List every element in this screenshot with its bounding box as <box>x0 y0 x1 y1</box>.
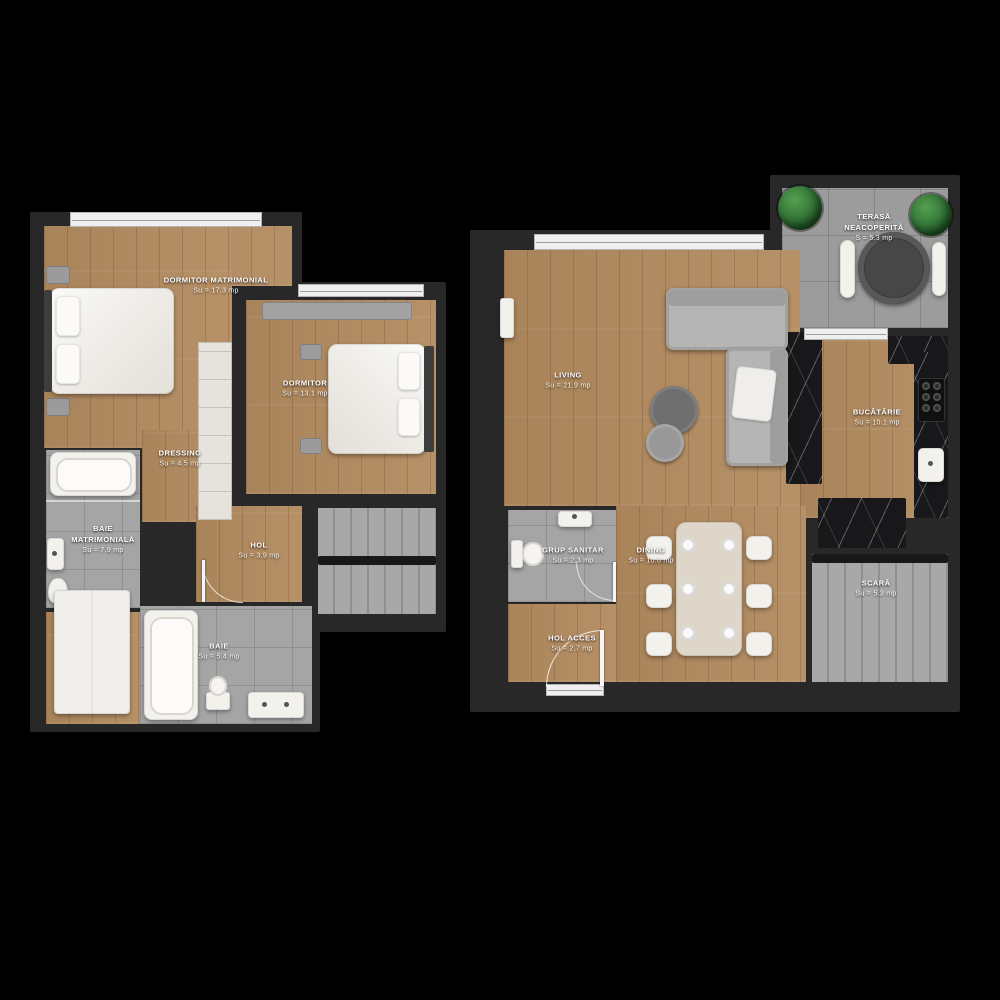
chair <box>746 632 772 656</box>
coffee-table <box>646 424 684 462</box>
faucet <box>572 514 577 519</box>
window <box>298 284 424 297</box>
window <box>534 234 764 250</box>
chair <box>746 536 772 560</box>
room-name: DORMITOR <box>283 378 327 387</box>
room-area: Su = 5.4 mp <box>189 652 249 662</box>
burner <box>933 393 941 401</box>
faucet <box>928 461 933 466</box>
faucet <box>52 551 57 556</box>
chair <box>646 584 672 608</box>
bathtub-inner <box>56 458 132 492</box>
room-name: SCARĂ <box>862 578 891 587</box>
room-area: S = 5.3 mp <box>835 234 913 244</box>
room-area: Su = 3.9 mp <box>229 551 289 561</box>
room-area: Su = 10.8 mp <box>616 556 686 566</box>
radiator <box>500 298 514 338</box>
plate <box>681 626 695 640</box>
shower-glass <box>46 500 140 502</box>
pillow <box>398 352 420 390</box>
stair-rail <box>812 554 948 563</box>
room-name: LIVING <box>554 370 582 379</box>
room-label: HOL Su = 3.9 mp <box>229 540 289 561</box>
room-label: HOL ACCES Su = 2.7 mp <box>532 633 612 654</box>
room-label: SCARĂ Su = 5.3 mp <box>846 578 906 599</box>
toilet-bowl <box>209 676 227 696</box>
burner <box>933 404 941 412</box>
room-label: DINING Su = 10.8 mp <box>616 545 686 566</box>
door-leaf <box>202 560 205 602</box>
room-area: Su = 7.9 mp <box>67 546 139 556</box>
wardrobe <box>198 342 232 520</box>
burner <box>922 393 930 401</box>
burner <box>922 404 930 412</box>
room-label: LIVING Su = 21.9 mp <box>528 370 608 391</box>
nightstand <box>46 266 70 284</box>
pillow <box>56 296 80 336</box>
faucet <box>284 702 289 707</box>
chair <box>646 632 672 656</box>
kitchen-counter <box>786 332 822 484</box>
room-area: Su = 2.7 mp <box>532 644 612 654</box>
nightstand <box>46 398 70 416</box>
room-area: Su = 2.3 mp <box>528 556 618 566</box>
room-label: DRESSING Su = 4.5 mp <box>145 448 215 469</box>
room-name: HOL ACCES <box>548 633 596 642</box>
plate <box>681 582 695 596</box>
bed-headboard <box>44 290 52 392</box>
closet <box>54 590 130 714</box>
throw-blanket <box>731 366 777 422</box>
room-name: BUCĂTĂRIE <box>853 407 901 416</box>
sofa-back <box>668 290 786 306</box>
room-name: BAIE MATRIMONIALĂ <box>71 524 135 544</box>
plant <box>910 194 952 236</box>
dresser <box>262 302 412 320</box>
room-area: Su = 4.5 mp <box>145 459 215 469</box>
stair-rail <box>318 556 436 565</box>
room-label: GRUP SANITAR Su = 2.3 mp <box>528 545 618 566</box>
plate <box>722 582 736 596</box>
room-name: BAIE <box>209 641 229 650</box>
stairs-main <box>812 554 948 682</box>
room-area: Su = 5.3 mp <box>846 589 906 599</box>
chair <box>746 584 772 608</box>
door-leaf <box>613 562 616 602</box>
terrace-bench <box>840 240 855 298</box>
nightstand <box>300 438 322 454</box>
plate <box>722 538 736 552</box>
kitchen-peninsula <box>818 498 906 548</box>
room-area: Su = 13.1 mp <box>260 389 350 399</box>
room-area: Su = 21.9 mp <box>528 381 608 391</box>
bathtub-inner <box>150 617 194 715</box>
room-label: BUCĂTĂRIE Su = 10.1 mp <box>837 407 917 428</box>
kitchen-counter <box>914 352 948 518</box>
room-area: Su = 10.1 mp <box>837 418 917 428</box>
plant <box>778 186 822 230</box>
room-area: Su = 17.3 mp <box>156 286 276 296</box>
room-name: HOL <box>250 540 267 549</box>
room-name: DRESSING <box>159 448 202 457</box>
plate <box>722 626 736 640</box>
bed-headboard <box>424 346 434 452</box>
room-label: BAIE Su = 5.4 mp <box>189 641 249 662</box>
room-label: DORMITOR Su = 13.1 mp <box>260 378 350 399</box>
room-name: DORMITOR MATRIMONIAL <box>164 275 269 284</box>
window <box>70 212 262 227</box>
floor-plan-canvas: DORMITOR MATRIMONIAL Su = 17.3 mp DORMIT… <box>0 0 1000 1000</box>
pillow <box>56 344 80 384</box>
room-name: DINING <box>637 545 666 554</box>
terrace-bench <box>932 242 946 296</box>
room-name: GRUP SANITAR <box>542 545 604 554</box>
burner <box>922 382 930 390</box>
room-name: TERASĂ NEACOPERITĂ <box>844 212 904 232</box>
faucet <box>262 702 267 707</box>
terrace-door <box>804 328 888 340</box>
room-label: TERASĂ NEACOPERITĂ S = 5.3 mp <box>835 212 913 244</box>
room-label: BAIE MATRIMONIALĂ Su = 7.9 mp <box>67 524 139 556</box>
nightstand <box>300 344 322 360</box>
vanity <box>248 692 304 718</box>
room-label: DORMITOR MATRIMONIAL Su = 17.3 mp <box>156 275 276 296</box>
pillow <box>398 398 420 436</box>
burner <box>933 382 941 390</box>
